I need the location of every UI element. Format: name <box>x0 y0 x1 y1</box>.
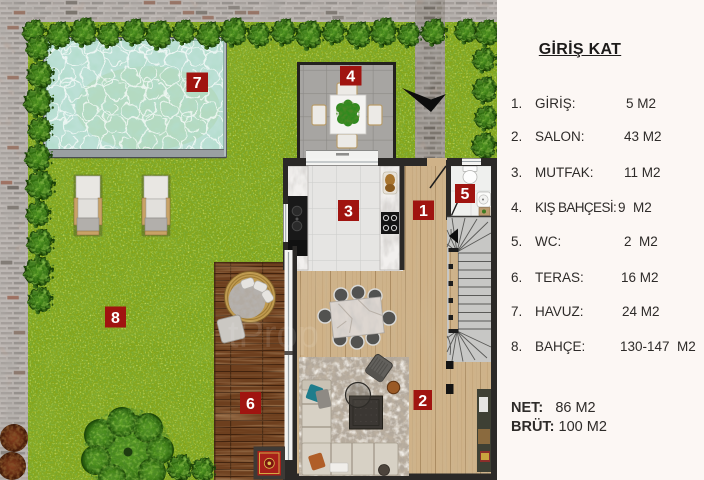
svg-text:1: 1 <box>419 203 428 220</box>
svg-text:6: 6 <box>246 396 255 413</box>
svg-text:8: 8 <box>111 310 120 327</box>
svg-text:5: 5 <box>461 186 470 203</box>
svg-text:3: 3 <box>344 204 353 221</box>
svg-text:2: 2 <box>418 393 427 410</box>
svg-text:4: 4 <box>346 69 355 86</box>
svg-text:tProp: tProp <box>228 314 319 356</box>
svg-text:7: 7 <box>193 75 202 92</box>
